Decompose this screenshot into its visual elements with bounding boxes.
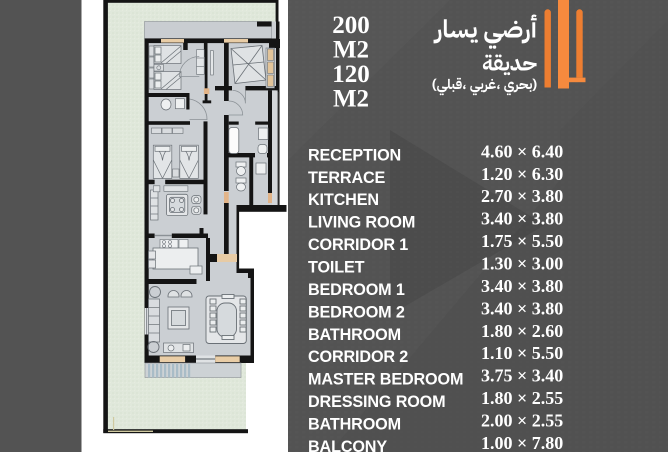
svg-text:BATHROOM: BATHROOM (308, 326, 401, 344)
svg-text:KITCHEN: KITCHEN (308, 191, 379, 209)
svg-text:BEDROOM 2: BEDROOM 2 (308, 303, 405, 321)
svg-text:RECEPTION: RECEPTION (308, 146, 401, 164)
svg-text:TERRACE: TERRACE (308, 169, 386, 187)
svg-text:3.40 × 3.80: 3.40 × 3.80 (481, 276, 563, 296)
svg-text:DRESSING ROOM: DRESSING ROOM (308, 393, 445, 411)
svg-text:MASTER BEDROOM: MASTER BEDROOM (308, 371, 463, 389)
svg-text:TOILET: TOILET (308, 259, 365, 277)
svg-text:BATHROOM: BATHROOM (308, 415, 401, 433)
svg-text:CORRIDOR 2: CORRIDOR 2 (308, 348, 408, 366)
svg-text:3.40 × 3.80: 3.40 × 3.80 (481, 209, 563, 229)
svg-text:1.80 × 2.55: 1.80 × 2.55 (481, 388, 563, 408)
svg-text:1.20 × 6.30: 1.20 × 6.30 (481, 164, 563, 184)
svg-text:1.00 × 7.80: 1.00 × 7.80 (481, 433, 563, 452)
svg-text:200: 200 (332, 12, 370, 39)
svg-text:3.75 × 3.40: 3.75 × 3.40 (481, 366, 563, 386)
svg-text:LIVING ROOM: LIVING ROOM (308, 214, 415, 232)
svg-text:CORRIDOR 1: CORRIDOR 1 (308, 236, 408, 254)
svg-text:M2: M2 (333, 37, 369, 64)
svg-text:1.10 × 5.50: 1.10 × 5.50 (481, 343, 563, 363)
svg-text:BALCONY: BALCONY (308, 438, 387, 452)
svg-text:4.60 × 6.40: 4.60 × 6.40 (481, 141, 563, 161)
svg-text:M2: M2 (333, 85, 369, 112)
svg-text:2.00 × 2.55: 2.00 × 2.55 (481, 410, 563, 430)
svg-text:120: 120 (332, 61, 370, 88)
svg-text:3.40 × 3.80: 3.40 × 3.80 (481, 298, 563, 318)
svg-text:1.30 × 3.00: 1.30 × 3.00 (481, 254, 563, 274)
svg-text:2.70 × 3.80: 2.70 × 3.80 (481, 186, 563, 206)
svg-text:BEDROOM 1: BEDROOM 1 (308, 281, 405, 299)
svg-text:1.75 × 5.50: 1.75 × 5.50 (481, 231, 563, 251)
svg-text:1.80 × 2.60: 1.80 × 2.60 (481, 321, 563, 341)
